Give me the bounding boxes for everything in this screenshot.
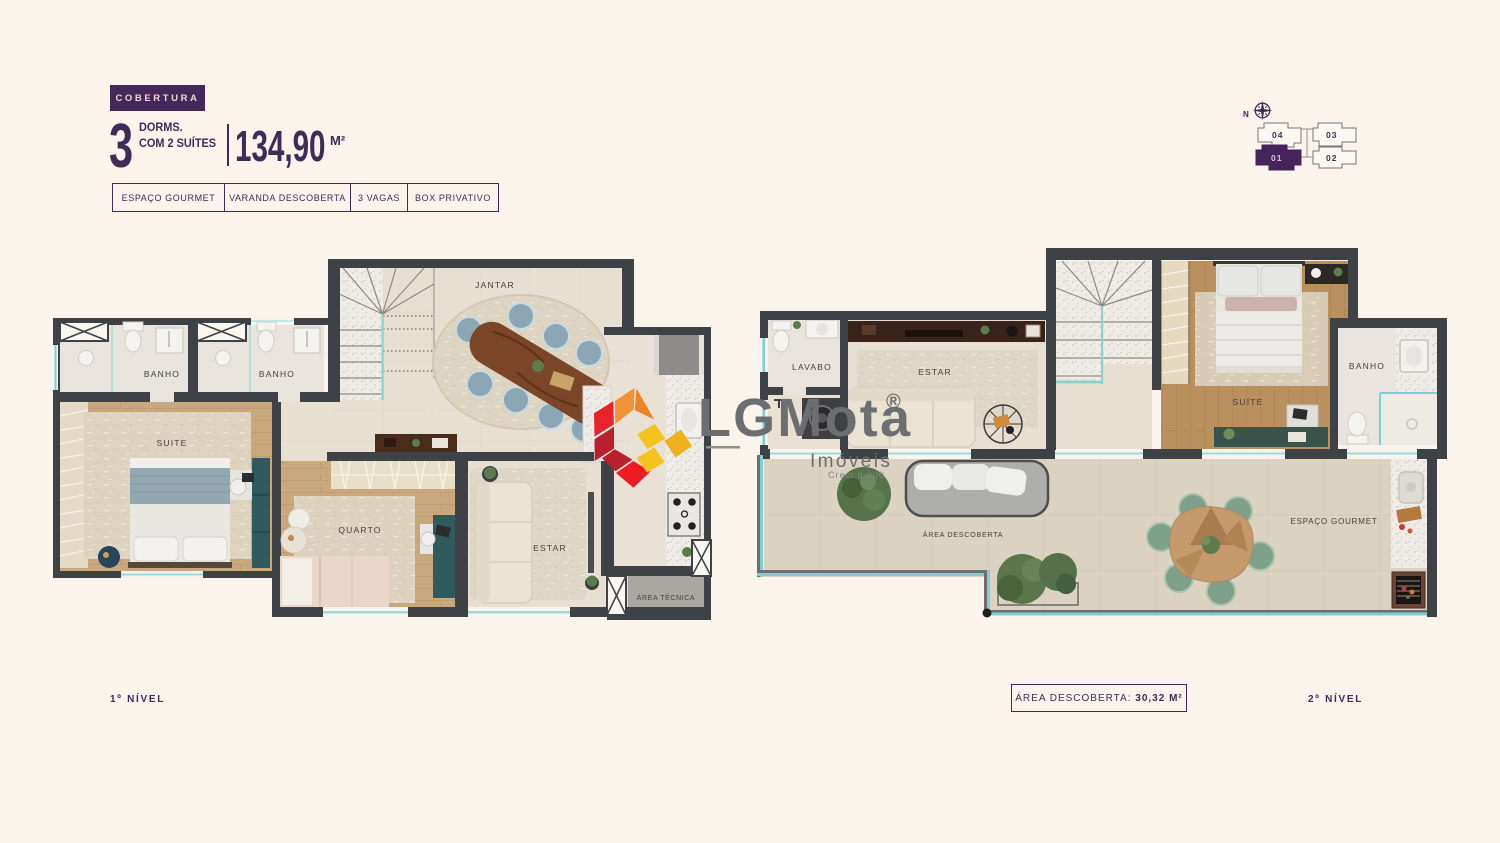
svg-text:SUÍTE: SUÍTE bbox=[1232, 397, 1263, 407]
svg-text:®: ® bbox=[886, 391, 901, 413]
svg-text:SUITE: SUITE bbox=[156, 438, 187, 448]
svg-text:01: 01 bbox=[1271, 153, 1282, 163]
svg-text:ESPAÇO GOURMET: ESPAÇO GOURMET bbox=[1290, 517, 1377, 526]
svg-text:Imóveis: Imóveis bbox=[810, 451, 892, 472]
svg-text:N: N bbox=[1243, 110, 1249, 119]
svg-text:ESTAR: ESTAR bbox=[918, 367, 952, 377]
svg-text:Creci d:300: Creci d:300 bbox=[828, 470, 885, 480]
svg-text:ESTAR: ESTAR bbox=[533, 543, 567, 553]
svg-text:02: 02 bbox=[1326, 153, 1337, 163]
svg-text:ÁREA DESCOBERTA: ÁREA DESCOBERTA bbox=[923, 530, 1004, 539]
svg-text:QUARTO: QUARTO bbox=[338, 525, 381, 535]
svg-text:ÁREA TÉCNICA: ÁREA TÉCNICA bbox=[637, 593, 695, 602]
svg-text:03: 03 bbox=[1326, 130, 1337, 140]
svg-text:BANHO: BANHO bbox=[144, 369, 180, 379]
svg-text:BANHO: BANHO bbox=[1349, 361, 1385, 371]
svg-text:04: 04 bbox=[1272, 130, 1283, 140]
svg-text:JANTAR: JANTAR bbox=[475, 280, 515, 290]
svg-text:BANHO: BANHO bbox=[259, 369, 295, 379]
svg-text:LGMota: LGMota bbox=[698, 388, 912, 448]
svg-text:LAVABO: LAVABO bbox=[792, 362, 832, 372]
